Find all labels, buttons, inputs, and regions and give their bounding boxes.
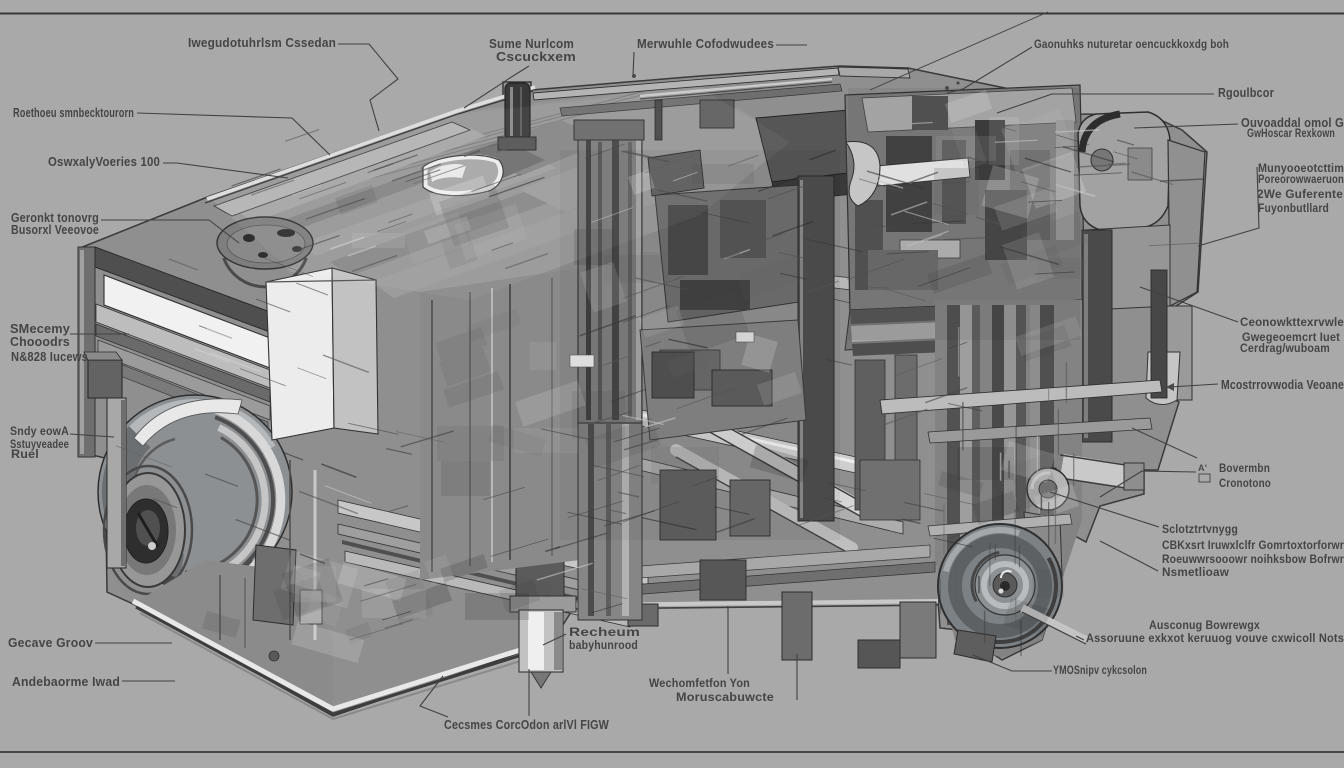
svg-text:YMOSnipv cykcsolon: YMOSnipv cykcsolon	[1053, 663, 1147, 677]
svg-text:Cecsmes CorcOdon arlVl FIGW: Cecsmes CorcOdon arlVl FIGW	[444, 718, 609, 732]
svg-text:Bovermbn: Bovermbn	[1219, 461, 1270, 475]
svg-text:Andebaorme Iwad: Andebaorme Iwad	[12, 675, 120, 689]
svg-text:Aʹ: Aʹ	[1198, 463, 1207, 473]
svg-text:Chooodrs: Chooodrs	[10, 335, 70, 349]
svg-text:Roeuwwrsooowr noihksbow Bofrwr: Roeuwwrsooowr noihksbow Bofrwr	[1162, 552, 1344, 566]
svg-text:Gecave Groov: Gecave Groov	[8, 636, 93, 650]
svg-text:2We Guferente: 2We Guferente	[1257, 189, 1343, 201]
svg-text:Cscuckxem: Cscuckxem	[496, 50, 576, 64]
svg-text:Iwegudotuhrlsm Cssedan: Iwegudotuhrlsm Cssedan	[188, 36, 336, 50]
svg-text:Roethoeu smnbecktourorn: Roethoeu smnbecktourorn	[13, 106, 134, 120]
svg-text:GwHoscar Rexkown: GwHoscar Rexkown	[1247, 128, 1335, 140]
svg-text:Busorxl Veeovoe: Busorxl Veeovoe	[11, 223, 99, 237]
svg-text:Mcostrrovwodia Veoane: Mcostrrovwodia Veoane	[1221, 378, 1344, 392]
svg-text:Recheum: Recheum	[569, 625, 640, 639]
svg-text:CBKxsrt Iruwxlclfr Gomrtoxtorf: CBKxsrt Iruwxlclfr Gomrtoxtorforwr	[1162, 538, 1344, 552]
svg-text:Nsmetlioaw: Nsmetlioaw	[1162, 565, 1229, 579]
svg-text:Ceonowkttexrvwle: Ceonowkttexrvwle	[1240, 315, 1344, 329]
svg-text:N&828 Iucews: N&828 Iucews	[11, 350, 88, 364]
svg-text:Wechomfetfon Yon: Wechomfetfon Yon	[649, 676, 750, 690]
svg-text:babyhunrood: babyhunrood	[569, 638, 638, 652]
svg-text:Fuyonbutllard: Fuyonbutllard	[1258, 203, 1329, 215]
svg-text:Moruscabuwcte: Moruscabuwcte	[676, 690, 774, 704]
svg-text:Assoruune exkxot keruuog vouve: Assoruune exkxot keruuog vouve cxwicoll …	[1086, 631, 1344, 645]
svg-text:Ruel: Ruel	[11, 447, 39, 461]
svg-text:Poreorowwaeruon: Poreorowwaeruon	[1258, 174, 1344, 186]
svg-text:Merwuhle Cofodwudees: Merwuhle Cofodwudees	[637, 37, 774, 51]
svg-text:Cerdrag/wuboam: Cerdrag/wuboam	[1240, 341, 1330, 355]
svg-text:Rgoulbcor: Rgoulbcor	[1218, 86, 1274, 100]
svg-text:Gaonuhks nuturetar oencuckkoxd: Gaonuhks nuturetar oencuckkoxdg boh	[1034, 37, 1229, 51]
svg-text:SMecemy: SMecemy	[10, 322, 70, 336]
svg-text:Ausconug Bowrewgx: Ausconug Bowrewgx	[1149, 618, 1260, 632]
svg-text:Sclotztrtvnygg: Sclotztrtvnygg	[1162, 522, 1238, 536]
svg-text:Sndy eowA: Sndy eowA	[10, 424, 69, 438]
svg-text:OswxalyVoeries 100: OswxalyVoeries 100	[48, 154, 160, 169]
svg-text:Cronotono: Cronotono	[1219, 476, 1271, 490]
svg-text:Sume Nurlcom: Sume Nurlcom	[489, 37, 574, 51]
